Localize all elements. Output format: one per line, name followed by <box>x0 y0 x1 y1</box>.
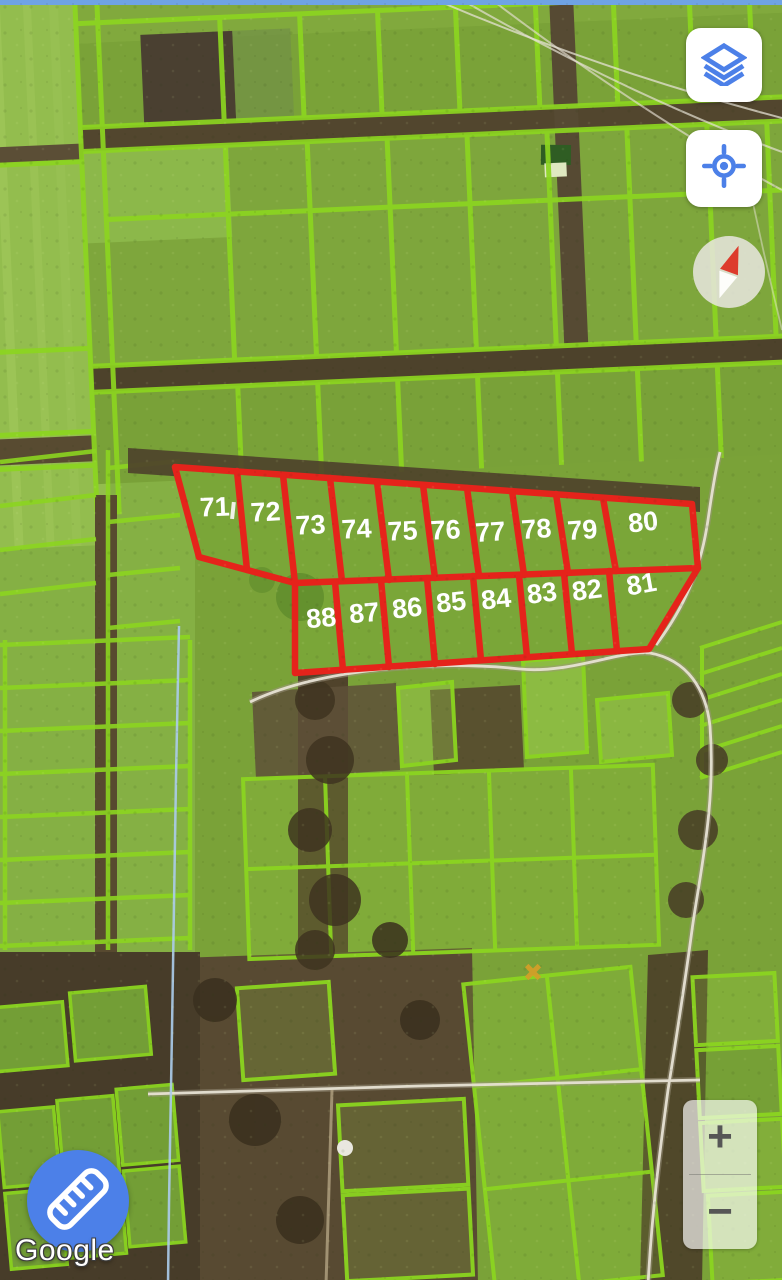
parcel-label-74: 74 <box>341 513 373 545</box>
zoom-in-button[interactable]: + <box>683 1100 757 1174</box>
ruler-icon <box>26 1147 130 1256</box>
parcel-label-82: 82 <box>570 573 603 606</box>
parcel-label-71: 71 <box>199 491 230 522</box>
parcel-label-79: 79 <box>566 514 598 546</box>
parcel-label-75: 75 <box>387 515 419 547</box>
parcel-label-84: 84 <box>480 583 513 616</box>
satellite-map[interactable]: 717273747576777879808182838485868788 <box>0 0 782 1280</box>
parcel-label-85: 85 <box>435 586 468 619</box>
parcel-label-78: 78 <box>520 513 552 545</box>
parcel-label-80: 80 <box>627 506 660 539</box>
map-screen: 717273747576777879808182838485868788 + <box>0 0 782 1280</box>
parcel-label-77: 77 <box>474 516 506 548</box>
layers-button[interactable] <box>686 28 762 102</box>
parcel-label-73: 73 <box>295 509 327 541</box>
parcel-label-72: 72 <box>250 496 282 528</box>
top-boundary-line <box>0 0 782 5</box>
zoom-control: + − <box>683 1100 757 1249</box>
measure-button[interactable] <box>27 1150 129 1252</box>
locate-icon <box>702 144 746 193</box>
layers-icon <box>701 40 747 91</box>
parcel-label-87: 87 <box>348 597 381 630</box>
locate-button[interactable] <box>686 130 762 207</box>
zoom-out-button[interactable]: − <box>683 1175 757 1249</box>
parcel-label-83: 83 <box>525 576 558 609</box>
compass-needle-icon <box>692 296 766 313</box>
parcel-label-81: 81 <box>624 567 659 602</box>
parcel-label-76: 76 <box>430 514 462 546</box>
parcel-label-88: 88 <box>305 602 338 635</box>
parcel-label-86: 86 <box>391 592 424 625</box>
compass-button[interactable] <box>692 235 766 309</box>
